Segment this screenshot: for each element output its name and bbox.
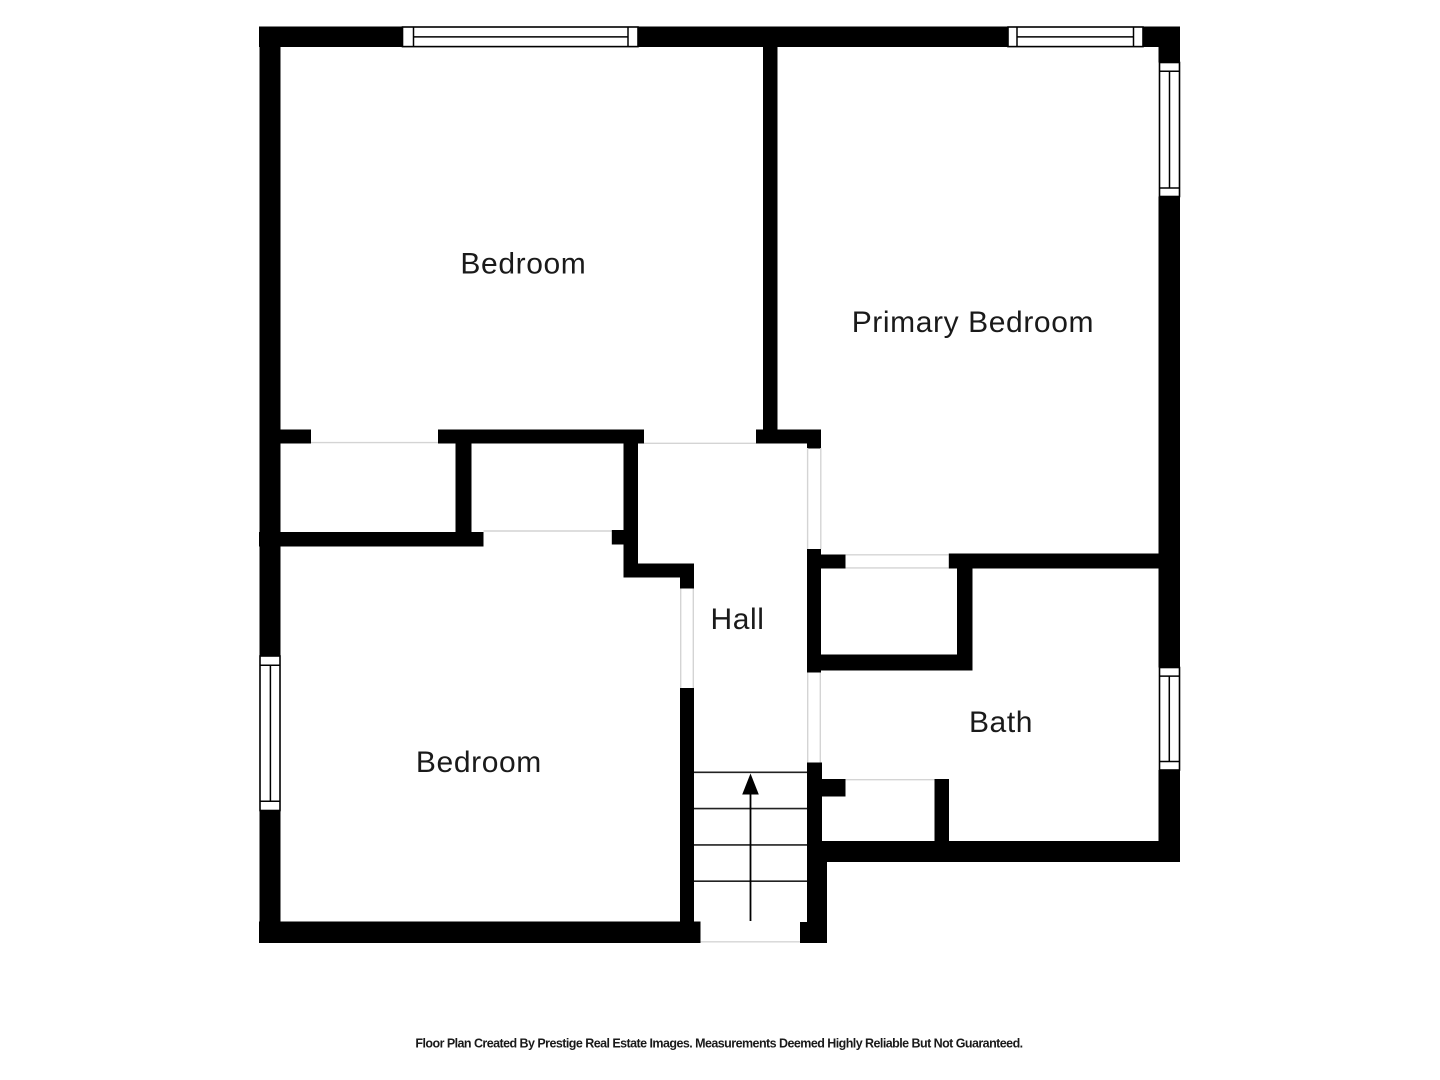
svg-text:Bedroom: Bedroom (416, 746, 542, 779)
svg-text:Primary Bedroom: Primary Bedroom (852, 306, 1094, 339)
svg-text:Bath: Bath (969, 706, 1033, 739)
svg-text:Bedroom: Bedroom (460, 247, 586, 280)
svg-text:Floor Plan Created By Prestige: Floor Plan Created By Prestige Real Esta… (415, 1036, 1022, 1050)
svg-text:Hall: Hall (710, 603, 764, 636)
